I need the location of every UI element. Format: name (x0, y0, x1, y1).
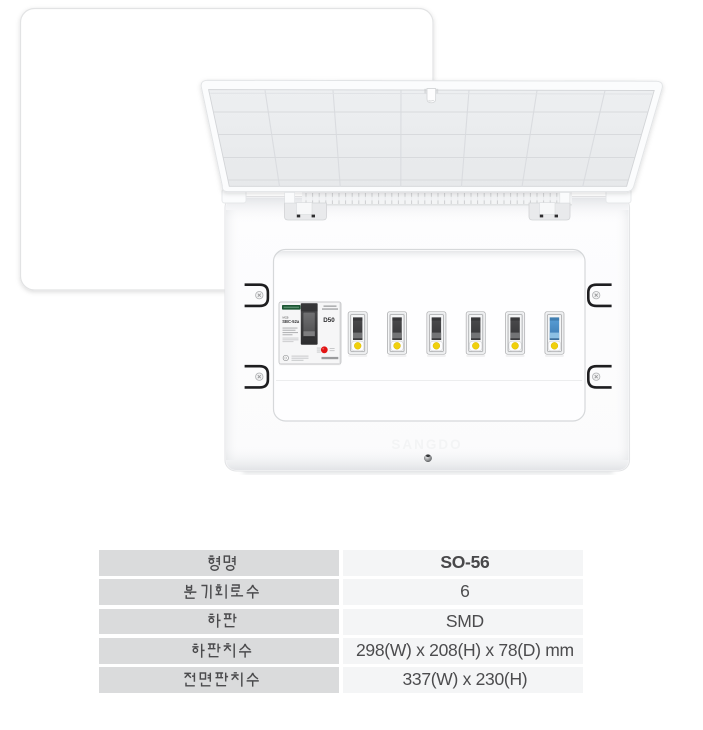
svg-text:D50: D50 (323, 317, 335, 324)
svg-text:SANGDO: SANGDO (391, 437, 462, 452)
svg-text:SBC-52a: SBC-52a (282, 319, 300, 324)
